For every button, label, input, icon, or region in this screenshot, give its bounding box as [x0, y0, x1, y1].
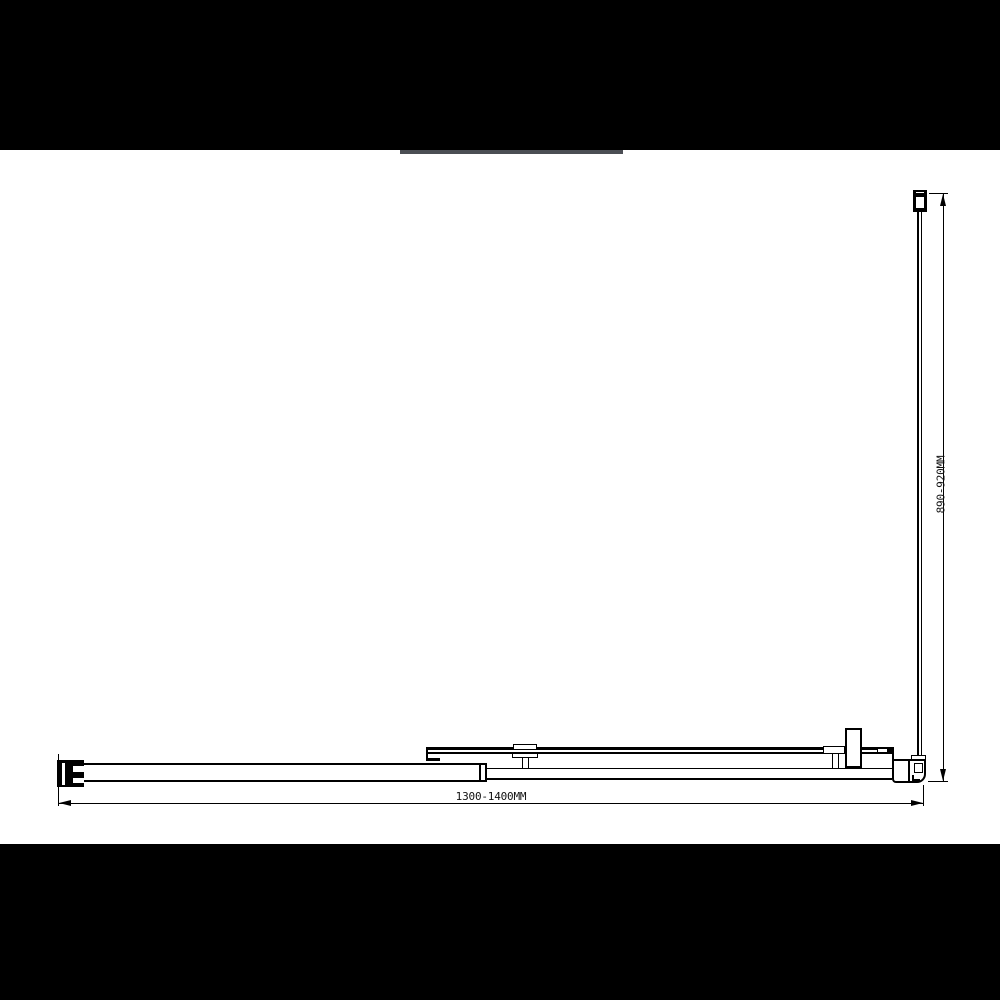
sliding-panel-bottom-line — [487, 778, 892, 780]
roller-left-cap — [513, 744, 537, 750]
corner-bracket-insert — [914, 763, 923, 773]
bracket-top-edge — [913, 190, 927, 192]
rail-right-nut — [877, 748, 888, 754]
screenshot-frame: 1300-1400MM 890-920MM — [0, 0, 1000, 1000]
front-panel-endcap-line — [479, 765, 481, 780]
depth-dim-arrow-top-icon — [940, 194, 946, 206]
roller-right-stem — [832, 754, 839, 769]
rail-left-hook-tab — [428, 758, 440, 761]
width-dim-label: 1300-1400MM — [430, 790, 552, 803]
wall-profile-slit — [62, 763, 65, 785]
wall-profile-notch-top — [73, 766, 84, 773]
bracket-top-band — [914, 193, 926, 197]
depth-dim-label: 890-920MM — [935, 424, 948, 546]
roller-right-cap — [823, 746, 845, 754]
front-fixed-panel — [60, 763, 487, 782]
roller-left-stem — [522, 758, 529, 769]
width-dim-arrow-right-icon — [911, 800, 923, 806]
mount-block — [845, 728, 862, 768]
corner-bracket-hook-h — [912, 779, 920, 781]
wall-bracket-top — [913, 190, 927, 212]
depth-dim-extension-bottom — [928, 781, 948, 782]
side-glass-line-outer — [917, 212, 919, 757]
wall-profile-left — [57, 760, 84, 787]
wall-profile-notch-bottom — [73, 778, 84, 783]
technical-drawing: 1300-1400MM 890-920MM — [0, 150, 1000, 844]
side-glass-line-inner — [921, 212, 923, 757]
corner-bracket-divider — [908, 761, 910, 781]
bottom-black-bar — [0, 844, 1000, 1000]
top-black-bar — [0, 0, 1000, 150]
depth-dim-arrow-bottom-icon — [940, 769, 946, 781]
width-dim-arrow-left-icon — [59, 800, 71, 806]
